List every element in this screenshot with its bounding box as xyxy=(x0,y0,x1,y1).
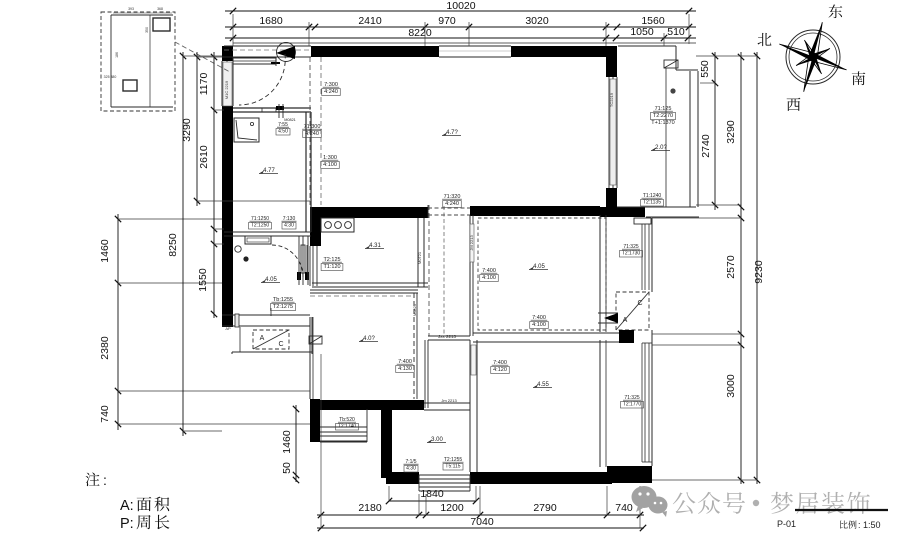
svg-text:4:100: 4:100 xyxy=(482,275,496,281)
svg-text:350: 350 xyxy=(145,27,149,33)
svg-text:P:: P: xyxy=(120,516,134,532)
svg-text:10020: 10020 xyxy=(446,0,475,12)
svg-text:: 1:50: : 1:50 xyxy=(858,520,881,530)
svg-text:510: 510 xyxy=(667,26,685,38)
svg-text:T2:1135: T2:1135 xyxy=(643,200,661,206)
svg-text:1200: 1200 xyxy=(440,502,464,514)
svg-text:50: 50 xyxy=(281,462,293,474)
svg-text:Jxx 2213: Jxx 2213 xyxy=(438,334,457,339)
svg-text:2610: 2610 xyxy=(198,145,210,169)
svg-text:T2:1250: T2:1250 xyxy=(251,223,270,229)
svg-text:T2:2270: T2:2270 xyxy=(653,113,673,119)
svg-text:AP: AP xyxy=(225,326,231,331)
svg-text:550: 550 xyxy=(699,60,711,78)
svg-text::: : xyxy=(103,472,107,488)
svg-text:3000: 3000 xyxy=(725,374,737,398)
svg-text:C: C xyxy=(278,341,283,348)
svg-text:325 380: 325 380 xyxy=(104,75,117,79)
svg-text:T2:1730: T2:1730 xyxy=(622,251,641,257)
svg-text:393: 393 xyxy=(128,7,134,11)
svg-text:740: 740 xyxy=(615,502,633,514)
svg-text:4:100: 4:100 xyxy=(532,322,546,328)
svg-text:T2:1275: T2:1275 xyxy=(273,304,293,310)
svg-text:T2:1770: T2:1770 xyxy=(623,402,642,408)
svg-text:1680: 1680 xyxy=(259,15,283,27)
svg-text:TC2219: TC2219 xyxy=(609,92,614,107)
svg-text:4:240: 4:240 xyxy=(324,89,338,95)
svg-text:4:50: 4:50 xyxy=(278,129,288,135)
svg-text:4:130: 4:130 xyxy=(398,366,412,372)
svg-text:Jm 2213: Jm 2213 xyxy=(441,398,457,403)
svg-text:3290: 3290 xyxy=(181,118,193,142)
svg-text:1460: 1460 xyxy=(99,239,111,263)
svg-text:3290: 3290 xyxy=(725,120,737,144)
svg-text:8220: 8220 xyxy=(408,27,432,39)
svg-text:T1:120: T1:120 xyxy=(323,264,340,270)
svg-text:186: 186 xyxy=(115,52,119,58)
svg-text:4:30: 4:30 xyxy=(284,223,294,229)
svg-text:2740: 2740 xyxy=(700,134,712,158)
svg-text:JM 2213: JM 2213 xyxy=(469,235,474,251)
svg-text:368: 368 xyxy=(157,7,163,11)
svg-text:1050: 1050 xyxy=(630,26,654,38)
svg-text:2570: 2570 xyxy=(725,255,737,279)
svg-text:C: C xyxy=(637,300,642,307)
svg-text:A: A xyxy=(260,335,265,342)
svg-text:4:120: 4:120 xyxy=(493,367,507,373)
svg-text:2410: 2410 xyxy=(358,15,382,27)
svg-text:9230: 9230 xyxy=(753,260,765,284)
svg-text:7040: 7040 xyxy=(470,516,494,528)
svg-text:8250: 8250 xyxy=(167,233,179,257)
svg-text:2790: 2790 xyxy=(533,502,557,514)
svg-text:T+1:1370: T+1:1370 xyxy=(651,120,674,126)
svg-text:1550: 1550 xyxy=(197,268,209,292)
svg-text:T2:1740: T2:1740 xyxy=(338,424,357,430)
svg-text:M0821: M0821 xyxy=(412,303,417,316)
svg-text:A: A xyxy=(623,317,628,324)
svg-text:M0721: M0721 xyxy=(417,251,422,264)
svg-text:740: 740 xyxy=(99,405,111,423)
svg-text:A:: A: xyxy=(120,498,134,514)
svg-text:4:240: 4:240 xyxy=(305,131,319,137)
svg-text:1170: 1170 xyxy=(198,73,210,96)
svg-text:P-01: P-01 xyxy=(777,519,796,529)
svg-text:1460: 1460 xyxy=(281,430,293,454)
svg-text:3020: 3020 xyxy=(525,15,549,27)
svg-text:M1C 2219: M1C 2219 xyxy=(224,80,229,99)
svg-text:2180: 2180 xyxy=(358,502,382,514)
svg-text:4:240: 4:240 xyxy=(445,201,459,207)
svg-text:4:100: 4:100 xyxy=(323,162,337,168)
svg-text:2380: 2380 xyxy=(99,336,111,360)
svg-text:4:30: 4:30 xyxy=(406,466,416,472)
svg-text:970: 970 xyxy=(438,15,456,27)
svg-text:T5:115: T5:115 xyxy=(445,464,460,470)
svg-text:1840: 1840 xyxy=(420,488,444,500)
